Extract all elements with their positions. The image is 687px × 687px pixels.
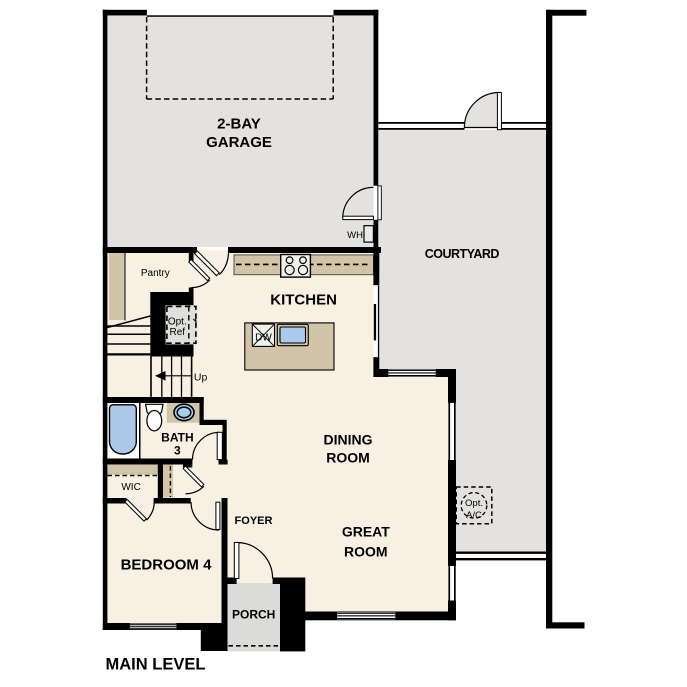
- svg-text:DW: DW: [255, 333, 272, 344]
- svg-text:Up: Up: [194, 371, 208, 383]
- svg-text:Ref: Ref: [170, 327, 186, 338]
- svg-text:GREAT: GREAT: [342, 524, 390, 540]
- svg-text:GARAGE: GARAGE: [206, 134, 272, 151]
- svg-text:ROOM: ROOM: [326, 449, 370, 465]
- svg-text:A/C: A/C: [466, 510, 482, 521]
- svg-text:DINING: DINING: [324, 432, 373, 448]
- svg-text:MAIN LEVEL: MAIN LEVEL: [106, 655, 206, 673]
- svg-text:FOYER: FOYER: [235, 515, 273, 527]
- svg-text:ROOM: ROOM: [344, 544, 388, 560]
- svg-text:3: 3: [174, 443, 181, 457]
- svg-text:Opt.: Opt.: [168, 316, 187, 327]
- svg-text:WH: WH: [347, 230, 363, 241]
- svg-text:WIC: WIC: [121, 482, 140, 493]
- svg-text:2-BAY: 2-BAY: [217, 116, 261, 133]
- svg-text:Pantry: Pantry: [141, 268, 170, 279]
- svg-text:PORCH: PORCH: [232, 607, 275, 621]
- svg-text:KITCHEN: KITCHEN: [270, 291, 337, 308]
- svg-text:COURTYARD: COURTYARD: [425, 247, 500, 261]
- svg-text:BEDROOM 4: BEDROOM 4: [121, 556, 213, 573]
- svg-text:Opt.: Opt.: [465, 498, 483, 509]
